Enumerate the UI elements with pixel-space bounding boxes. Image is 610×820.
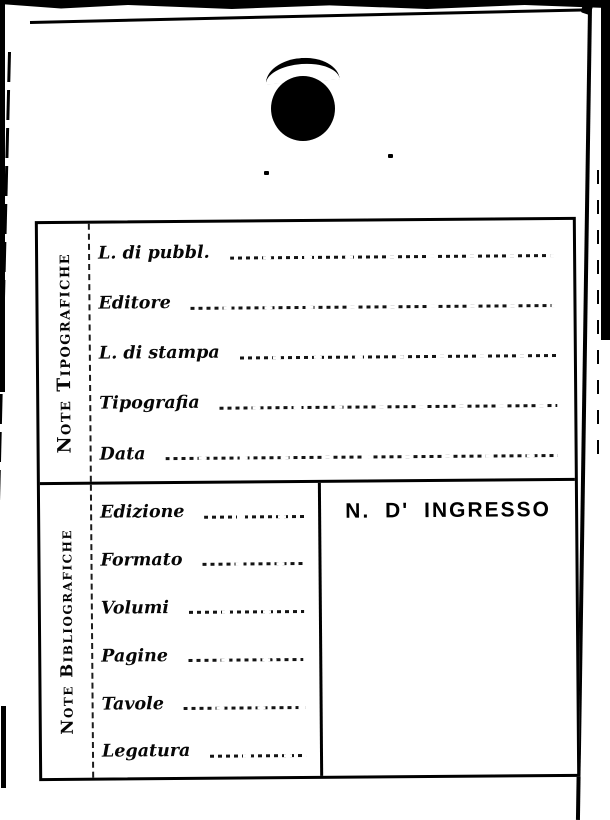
scan-left-blob xyxy=(1,706,6,788)
fill-line xyxy=(210,754,306,758)
bibliografiche-vertical-label: Note Bibliografiche xyxy=(56,528,77,734)
field-row: Data xyxy=(100,443,560,464)
field-row: Tavole xyxy=(102,695,308,714)
field-label: Pagine xyxy=(101,648,168,666)
bibliografiche-fields: Edizione Formato Volumi Pagine xyxy=(92,483,320,778)
field-row: L. di stampa xyxy=(99,342,559,363)
field-row: Tipografia xyxy=(99,392,559,413)
field-row: Formato xyxy=(100,551,306,570)
fill-line xyxy=(204,515,304,519)
fill-line xyxy=(240,354,557,359)
fill-line xyxy=(230,254,556,260)
field-label: Data xyxy=(100,446,146,464)
field-label: Volumi xyxy=(101,600,169,618)
tipografiche-fields: L. di pubbl. Editore L. di stampa Tipogr… xyxy=(90,220,575,482)
fill-line xyxy=(191,304,557,310)
field-label: Tipografia xyxy=(99,395,200,413)
field-label: Formato xyxy=(100,552,182,570)
field-row: Legatura xyxy=(102,742,308,761)
field-row: Edizione xyxy=(100,503,306,522)
scan-right-edge-strip xyxy=(601,0,610,340)
field-label: Edizione xyxy=(100,504,184,522)
field-label: L. di pubbl. xyxy=(98,245,210,263)
fill-line xyxy=(184,706,306,710)
ingresso-title: N. D' INGRESSO xyxy=(321,498,575,524)
field-label: L. di stampa xyxy=(99,345,220,363)
field-row: Pagine xyxy=(101,647,307,666)
field-label: Tavole xyxy=(102,696,164,714)
scan-right-edge-dashes xyxy=(597,170,599,470)
tipografiche-side-column: Note Tipografiche xyxy=(38,224,92,482)
fill-line xyxy=(220,404,558,410)
tipografiche-vertical-label: Note Tipografiche xyxy=(53,253,76,454)
field-row: L. di pubbl. xyxy=(98,242,558,263)
punch-hole xyxy=(271,76,335,141)
ink-dot xyxy=(264,171,269,175)
catalog-table: Note Tipografiche L. di pubbl. Editore L… xyxy=(35,217,580,781)
scan-top-edge-strip xyxy=(0,0,610,9)
fill-line xyxy=(189,610,305,614)
ingresso-cell: N. D' INGRESSO xyxy=(321,481,577,776)
field-row: Editore xyxy=(98,292,558,313)
bibliografiche-fields-column: Edizione Formato Volumi Pagine xyxy=(92,483,320,778)
ink-dot xyxy=(388,154,393,158)
fill-line xyxy=(202,562,304,566)
section-bibliografiche: Note Bibliografiche Edizione Formato Vol… xyxy=(40,481,577,778)
card-top-edge-line xyxy=(30,8,588,23)
fill-line xyxy=(166,454,558,460)
field-label: Editore xyxy=(98,295,170,313)
section-tipografiche: Note Tipografiche L. di pubbl. Editore L… xyxy=(38,220,575,482)
scanned-card-page: Note Tipografiche L. di pubbl. Editore L… xyxy=(0,0,610,820)
fill-line xyxy=(188,658,305,662)
bibliografiche-side-column: Note Bibliografiche xyxy=(40,485,94,778)
field-label: Legatura xyxy=(102,743,191,761)
field-row: Volumi xyxy=(101,599,307,618)
